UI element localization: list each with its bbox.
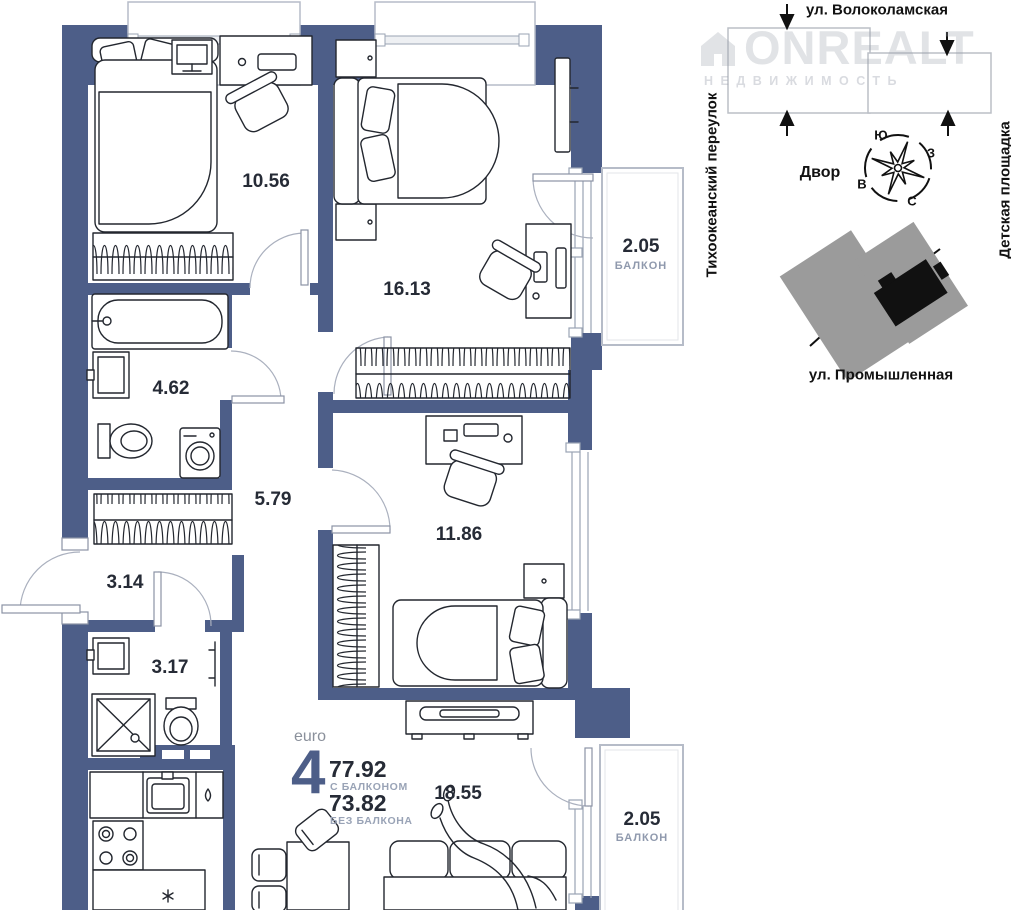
- room-area-label: 18.55: [434, 783, 482, 805]
- toilet-icon: [98, 424, 152, 458]
- kitchen-counter-icon: [93, 870, 205, 910]
- area-with-balcony: 77.92: [329, 758, 387, 781]
- room-area-label: 5.79: [255, 489, 292, 511]
- floor-plan-drawing: [0, 0, 1011, 910]
- room-area-label: 11.86: [436, 524, 483, 546]
- area-without-balcony: 73.82: [329, 792, 387, 815]
- floorplan-page: ONREALT НЕДВИЖИМОСТЬ 10.56 16.13 4.62 5.…: [0, 0, 1011, 910]
- wardrobe-icon: [93, 233, 233, 280]
- courtyard-label: Двор: [800, 164, 841, 182]
- area-without-balcony-caption: БЕЗ БАЛКОНА: [330, 815, 413, 827]
- rooms-count: 4: [291, 746, 325, 800]
- balcony-caption: БАЛКОН: [615, 260, 668, 272]
- desk-icon: [426, 416, 522, 510]
- balcony-caption: БАЛКОН: [616, 832, 669, 844]
- bathtub-icon: [92, 294, 228, 349]
- room-area-label: 10.56: [242, 171, 290, 193]
- stove-icon: [93, 821, 143, 870]
- room-area-label: 3.14: [107, 572, 144, 594]
- balcony-area-label: 2.05: [623, 236, 660, 258]
- compass-north-label: С: [907, 194, 916, 209]
- towel-rail-icon: [209, 642, 215, 686]
- balcony-area-label: 2.05: [624, 809, 661, 831]
- bed-single-icon: [393, 564, 567, 688]
- street-label-top: ул. Волоколамская: [806, 2, 948, 19]
- desk-icon: [473, 224, 571, 318]
- shower-icon: [92, 694, 155, 756]
- wardrobe-icon: [356, 348, 570, 398]
- area-label-right: Детская площадка: [997, 121, 1011, 258]
- sink-icon: [87, 638, 129, 674]
- room-area-label: 4.62: [153, 378, 190, 400]
- washing-machine-icon: [180, 428, 220, 478]
- kitchen-counter-icon: [90, 772, 223, 818]
- wardrobe-icon: [94, 494, 232, 544]
- wardrobe-icon: [333, 545, 379, 687]
- monitor-icon: [172, 40, 212, 74]
- room-area-label: 3.17: [152, 657, 189, 679]
- toilet-icon: [164, 698, 198, 745]
- desk-icon: [220, 36, 312, 137]
- sofa-icon: [384, 841, 566, 910]
- room-area-label: 16.13: [383, 279, 431, 301]
- street-label-bottom: ул. Промышленная: [809, 367, 953, 384]
- compass-west-label: З: [927, 146, 935, 161]
- sink-icon: [87, 352, 129, 398]
- compass-east-label: В: [857, 177, 866, 192]
- compass-rose: [856, 126, 939, 209]
- street-label-left: Тихоокеанский переулок: [704, 93, 721, 278]
- compass-south-label: Ю: [874, 128, 887, 143]
- site-building-highlight: [780, 199, 969, 383]
- tv-stand-icon: [406, 701, 533, 739]
